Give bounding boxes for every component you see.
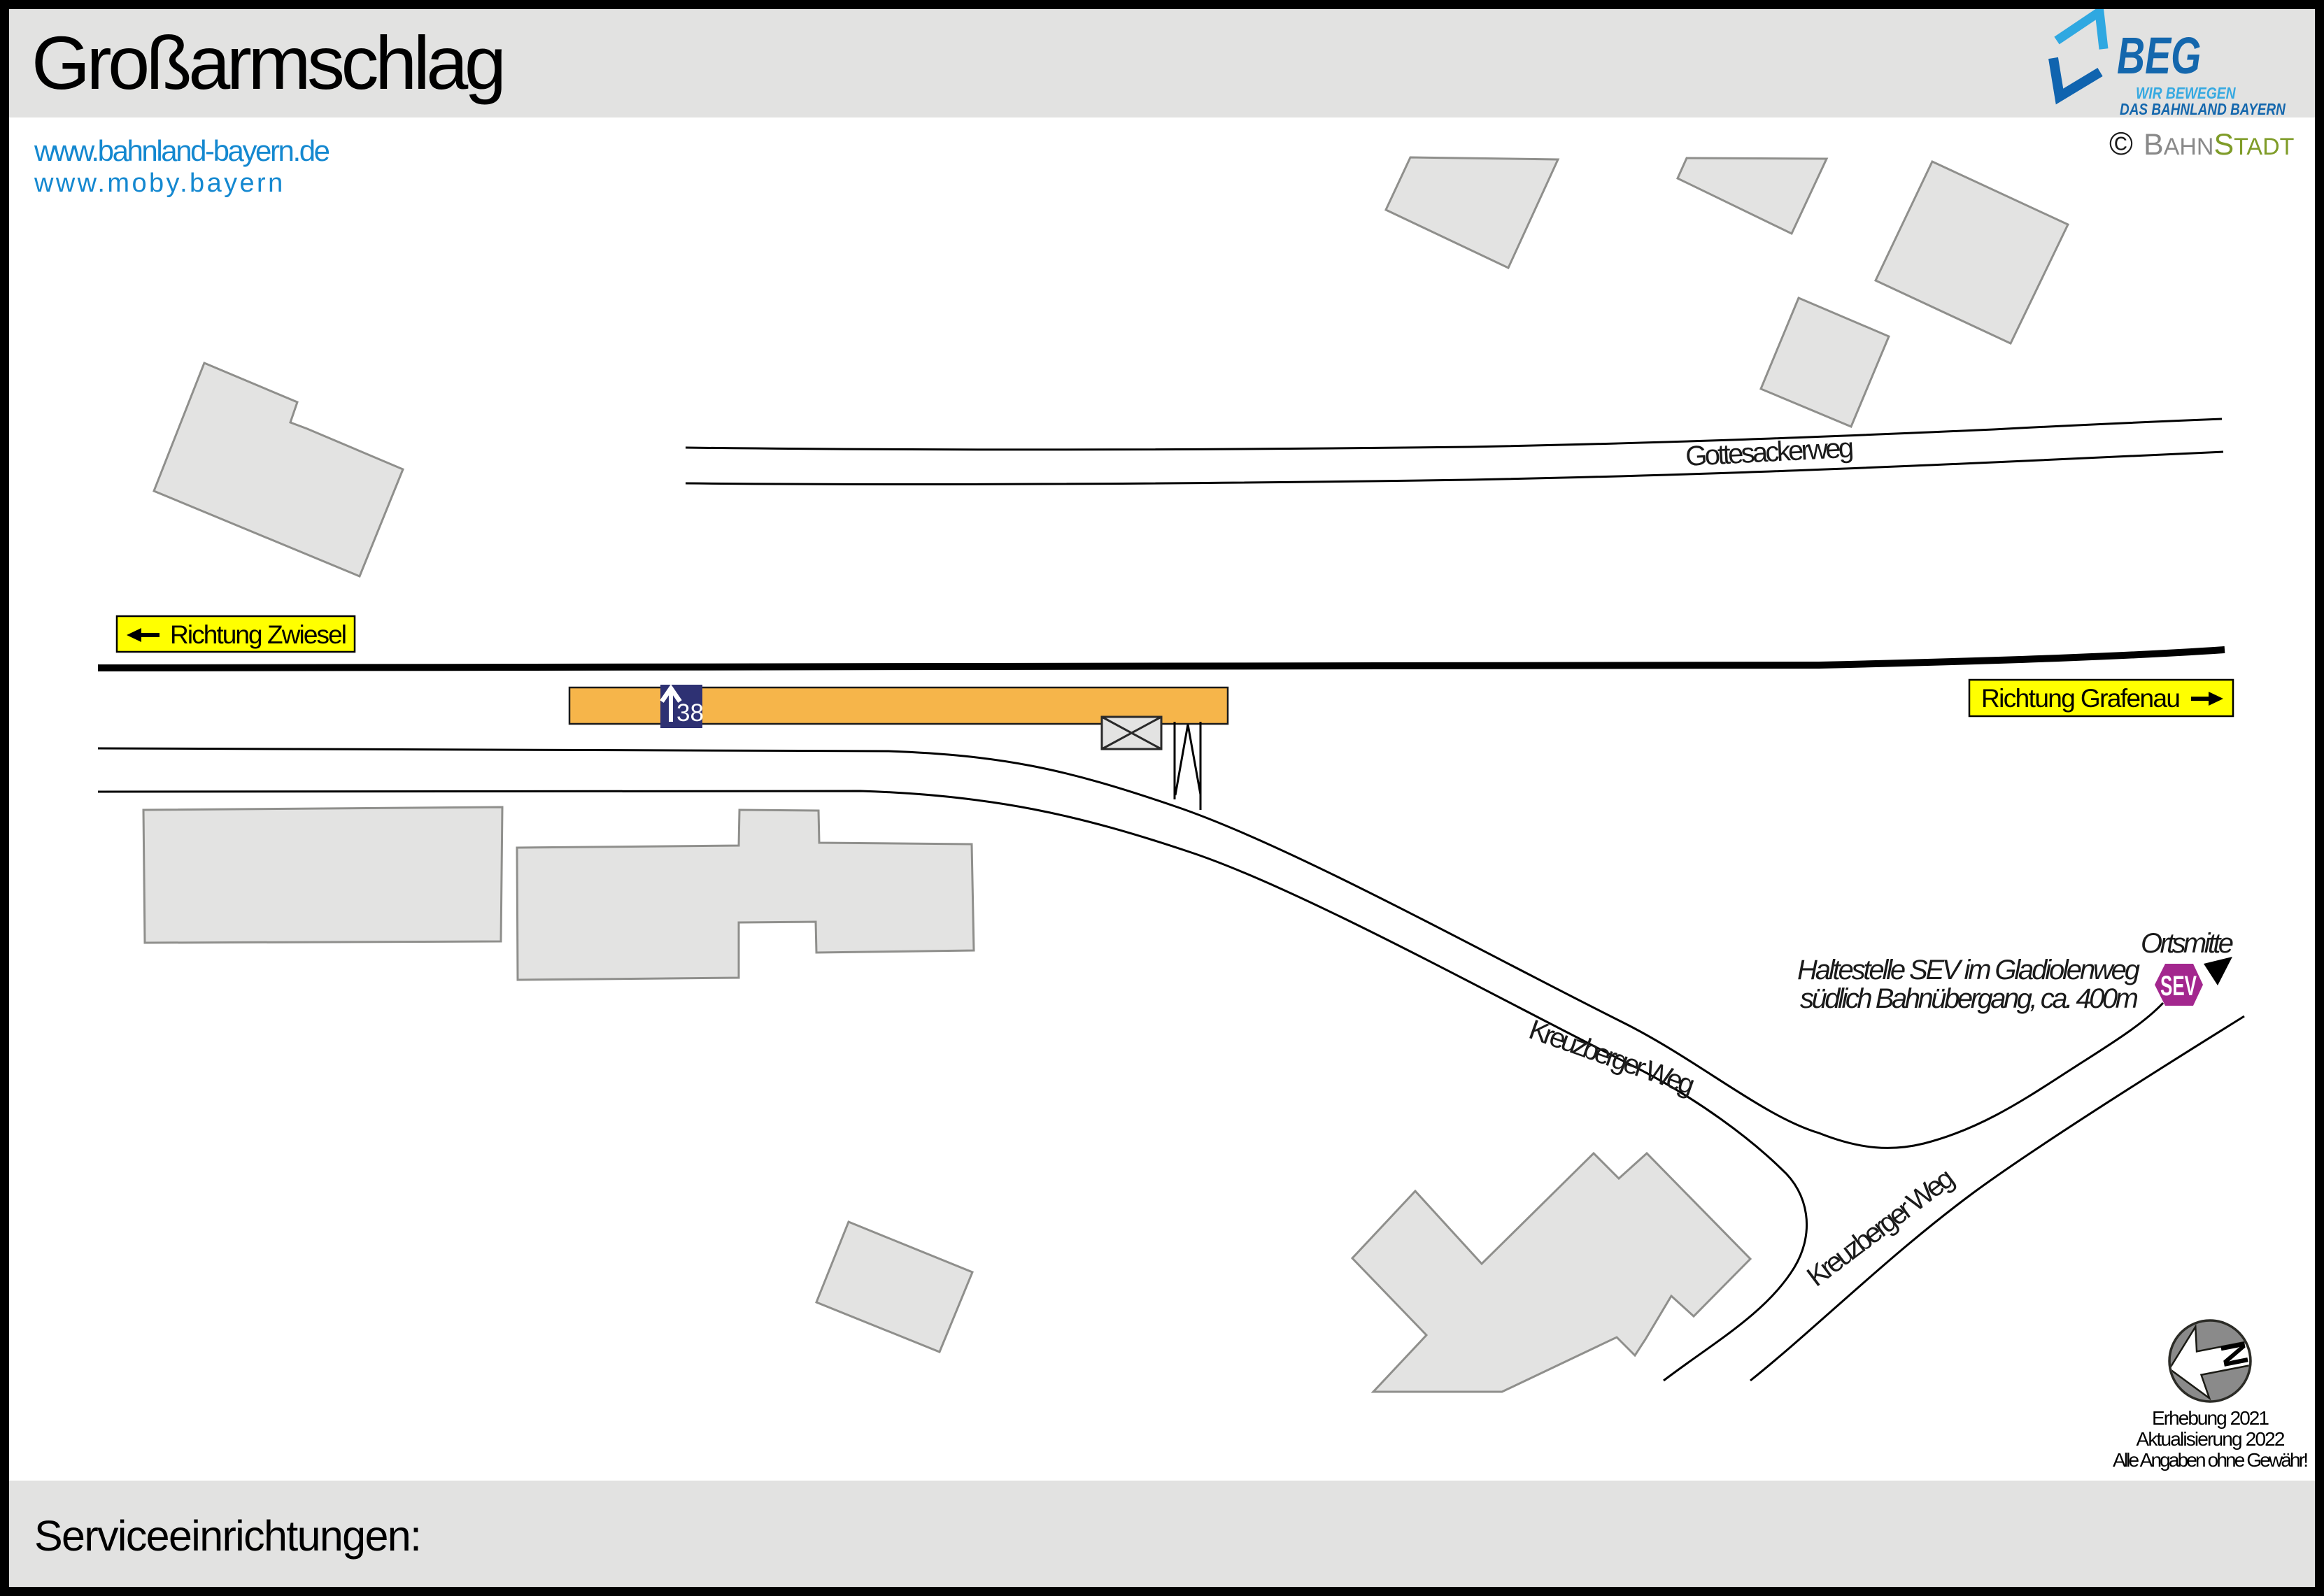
svg-text:Aktualisierung 2022: Aktualisierung 2022 bbox=[2137, 1428, 2286, 1450]
svg-text:Serviceeinrichtungen:: Serviceeinrichtungen: bbox=[34, 1512, 422, 1560]
svg-text:Großarmschlag: Großarmschlag bbox=[31, 20, 506, 105]
svg-text:südlich Bahnübergang, ca. 400m: südlich Bahnübergang, ca. 400m bbox=[1800, 983, 2139, 1014]
svg-text:Alle Angaben ohne Gewähr!: Alle Angaben ohne Gewähr! bbox=[2113, 1449, 2309, 1471]
svg-text:Haltestelle SEV im Gladiolenwe: Haltestelle SEV im Gladiolenweg bbox=[1797, 955, 2140, 985]
svg-text:Richtung Grafenau: Richtung Grafenau bbox=[1981, 684, 2181, 713]
svg-text:BEG: BEG bbox=[2117, 27, 2201, 85]
svg-text:BAHNSTADT: BAHNSTADT bbox=[2144, 128, 2294, 162]
svg-text:DAS BAHNLAND BAYERN: DAS BAHNLAND BAYERN bbox=[2120, 101, 2286, 118]
svg-text:Erhebung 2021: Erhebung 2021 bbox=[2152, 1407, 2269, 1429]
svg-text:©: © bbox=[2109, 125, 2133, 162]
svg-text:SEV: SEV bbox=[2160, 971, 2197, 1002]
svg-text:www.bahnland-bayern.de: www.bahnland-bayern.de bbox=[34, 134, 330, 167]
svg-text:Richtung Zwiesel: Richtung Zwiesel bbox=[170, 620, 347, 649]
svg-text:Ortsmitte: Ortsmitte bbox=[2141, 928, 2234, 959]
svg-text:WIR BEWEGEN: WIR BEWEGEN bbox=[2136, 85, 2236, 103]
svg-text:38: 38 bbox=[676, 699, 704, 727]
svg-text:www.moby.bayern: www.moby.bayern bbox=[34, 169, 285, 198]
